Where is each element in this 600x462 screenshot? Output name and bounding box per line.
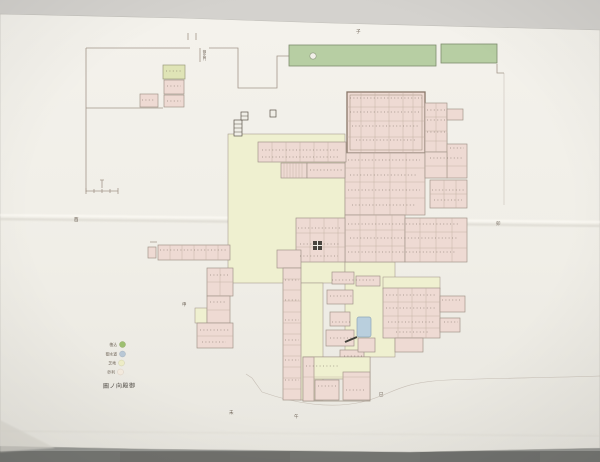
scene: 御北門 酉 子 未 午 巳 卯 申 植込 御水道 芝地 砂利 圖ノ向殿御 [0,0,600,462]
photo-of-plan: 御北門 酉 子 未 午 巳 卯 申 植込 御水道 芝地 砂利 圖ノ向殿御 [0,0,600,462]
photo-vignette [0,0,600,462]
